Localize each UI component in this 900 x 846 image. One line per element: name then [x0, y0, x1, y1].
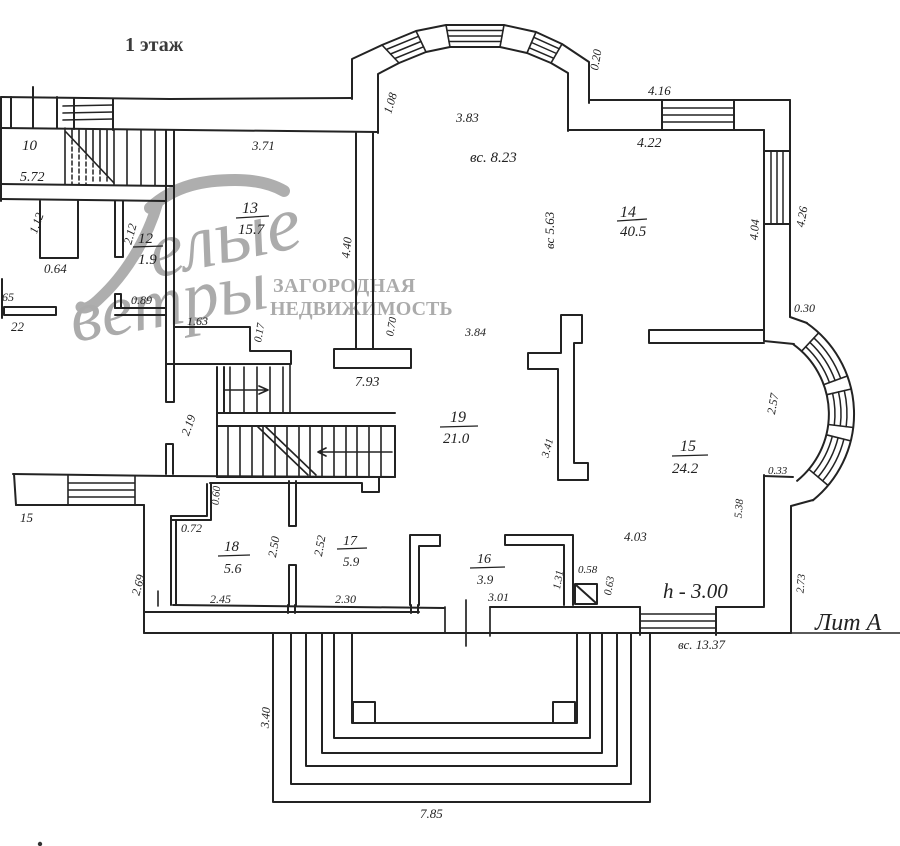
svg-text:19: 19 — [450, 409, 466, 426]
svg-text:ветры: ветры — [63, 244, 273, 357]
svg-text:вс. 13.37: вс. 13.37 — [678, 637, 725, 652]
svg-text:7.85: 7.85 — [420, 806, 443, 821]
svg-text:5.6: 5.6 — [224, 562, 242, 577]
svg-text:2.30: 2.30 — [335, 592, 356, 606]
svg-text:15.7: 15.7 — [238, 222, 266, 238]
svg-text:22: 22 — [11, 319, 25, 334]
svg-text:4.40: 4.40 — [338, 236, 354, 259]
svg-text:7.93: 7.93 — [355, 375, 380, 390]
svg-text:3.40: 3.40 — [257, 707, 273, 730]
svg-text:3.84: 3.84 — [464, 325, 486, 339]
svg-text:НЕДВИЖИМОСТЬ: НЕДВИЖИМОСТЬ — [270, 298, 453, 320]
svg-text:4.16: 4.16 — [648, 83, 671, 98]
svg-text:3.41: 3.41 — [539, 437, 556, 460]
svg-text:5.9: 5.9 — [343, 554, 360, 569]
svg-text:16: 16 — [477, 552, 491, 567]
svg-text:3.83: 3.83 — [455, 110, 479, 125]
svg-text:0.20: 0.20 — [587, 48, 604, 71]
svg-text:h - 3.00: h - 3.00 — [663, 579, 728, 603]
svg-text:2.52: 2.52 — [311, 534, 328, 557]
svg-text:0.72: 0.72 — [181, 521, 202, 535]
svg-text:0.58: 0.58 — [578, 564, 598, 576]
svg-text:2.45: 2.45 — [210, 592, 231, 606]
svg-text:4.03: 4.03 — [624, 529, 647, 544]
svg-text:3.01: 3.01 — [487, 590, 509, 604]
svg-text:5.72: 5.72 — [20, 170, 45, 185]
svg-text:0.63: 0.63 — [602, 575, 617, 597]
svg-text:24.2: 24.2 — [672, 461, 699, 477]
svg-text:0.64: 0.64 — [44, 261, 67, 276]
svg-text:40.5: 40.5 — [620, 224, 647, 240]
svg-text:Лит А: Лит А — [814, 610, 882, 636]
svg-text:3.9: 3.9 — [476, 572, 494, 587]
svg-text:вс. 8.23: вс. 8.23 — [470, 150, 517, 166]
svg-text:0.33: 0.33 — [768, 465, 788, 477]
svg-text:0.17: 0.17 — [252, 322, 267, 344]
svg-text:21.0: 21.0 — [443, 431, 470, 447]
svg-text:17: 17 — [343, 534, 358, 549]
svg-text:3.71: 3.71 — [251, 138, 275, 153]
svg-text:5.38: 5.38 — [732, 498, 746, 519]
svg-text:2.73: 2.73 — [794, 573, 808, 594]
svg-text:4.04: 4.04 — [746, 219, 762, 241]
svg-text:1.12: 1.12 — [26, 211, 46, 236]
svg-text:15: 15 — [20, 510, 34, 525]
svg-text:2.19: 2.19 — [178, 413, 198, 438]
svg-text:вс 5.63: вс 5.63 — [542, 211, 557, 249]
svg-text:2.57: 2.57 — [764, 391, 782, 415]
svg-text:14: 14 — [620, 204, 636, 221]
svg-text:1.9: 1.9 — [138, 252, 157, 268]
svg-text:0.89: 0.89 — [131, 293, 152, 307]
svg-text:1.63: 1.63 — [187, 314, 208, 328]
svg-text:2.50: 2.50 — [265, 535, 282, 558]
svg-text:4.26: 4.26 — [793, 205, 810, 228]
svg-text:1.08: 1.08 — [381, 91, 401, 115]
svg-text:18: 18 — [224, 539, 240, 555]
svg-text:4.22: 4.22 — [637, 136, 662, 151]
svg-text:0.70: 0.70 — [384, 316, 399, 338]
svg-text:1 этаж: 1 этаж — [125, 34, 184, 56]
svg-text:65: 65 — [2, 290, 14, 304]
svg-text:0.60: 0.60 — [210, 485, 224, 506]
svg-text:0.30: 0.30 — [794, 301, 815, 315]
svg-text:ЗАГОРОДНАЯ: ЗАГОРОДНАЯ — [273, 275, 416, 297]
svg-text:10: 10 — [22, 138, 38, 154]
svg-text:13: 13 — [242, 200, 258, 217]
svg-text:12: 12 — [138, 231, 154, 247]
svg-text:15: 15 — [680, 438, 696, 455]
